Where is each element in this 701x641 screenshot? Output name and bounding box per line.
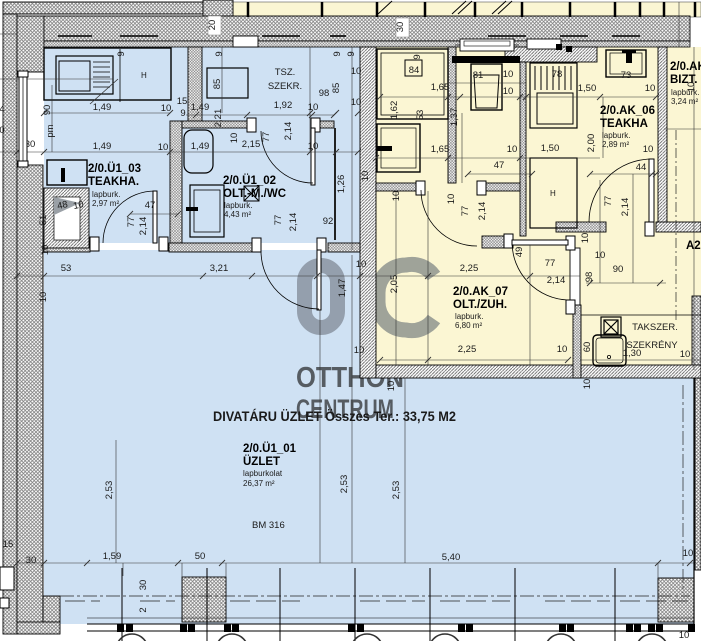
svg-text:81: 81 [473, 70, 484, 81]
svg-text:2/0.AK_0: 2/0.AK_0 [670, 61, 701, 73]
svg-text:2,14: 2,14 [477, 202, 488, 221]
svg-text:2,05: 2,05 [389, 275, 400, 294]
svg-text:20: 20 [207, 20, 218, 31]
svg-text:77: 77 [273, 215, 284, 226]
svg-text:2/0.AK_06: 2/0.AK_06 [600, 105, 655, 117]
svg-text:2,14: 2,14 [288, 213, 299, 232]
svg-text:10: 10 [351, 66, 362, 77]
svg-text:2,25: 2,25 [458, 344, 477, 355]
svg-text:10: 10 [308, 102, 319, 113]
svg-text:30: 30 [138, 580, 149, 591]
svg-text:9: 9 [116, 51, 127, 56]
svg-text:10: 10 [38, 292, 49, 303]
svg-text:5,40: 5,40 [442, 552, 461, 563]
svg-text:1,92: 1,92 [274, 100, 293, 111]
svg-text:2,00: 2,00 [586, 134, 597, 153]
svg-text:51: 51 [38, 215, 49, 226]
svg-text:10: 10 [507, 144, 518, 155]
svg-text:10: 10 [158, 142, 169, 153]
svg-text:77: 77 [603, 196, 614, 207]
svg-text:1,47: 1,47 [337, 279, 348, 298]
svg-text:77: 77 [545, 258, 556, 269]
svg-text:2,53: 2,53 [104, 481, 115, 500]
svg-text:10: 10 [680, 349, 691, 360]
svg-text:2,14: 2,14 [620, 198, 631, 217]
svg-text:78: 78 [552, 69, 563, 80]
svg-text:2,21: 2,21 [213, 109, 224, 128]
svg-text:10: 10 [391, 191, 402, 202]
svg-text:84: 84 [409, 65, 420, 76]
svg-text:2,53: 2,53 [391, 481, 402, 500]
svg-text:2,25: 2,25 [460, 263, 479, 274]
svg-text:77: 77 [126, 217, 137, 228]
svg-text:BM 316: BM 316 [252, 520, 285, 531]
svg-text:10: 10 [679, 630, 690, 641]
svg-text:pm: pm [45, 124, 56, 137]
svg-text:10: 10 [580, 233, 591, 244]
svg-text:73: 73 [621, 70, 632, 81]
svg-text:1,26: 1,26 [336, 175, 347, 194]
svg-text:6,80 m²: 6,80 m² [455, 321, 482, 330]
svg-text:OLT./ZUH.: OLT./ZUH. [453, 299, 507, 311]
svg-text:2/0.AK_07: 2/0.AK_07 [453, 286, 508, 298]
svg-text:15: 15 [177, 96, 188, 107]
svg-text:98: 98 [584, 272, 595, 283]
svg-text:47: 47 [494, 160, 505, 171]
svg-text:10: 10 [643, 144, 654, 155]
svg-text:60: 60 [582, 342, 593, 353]
svg-text:2,14: 2,14 [283, 122, 294, 141]
svg-text:DIVATÁRU ÜZLET Összes Ter.: 33: DIVATÁRU ÜZLET Összes Ter.: 33,75 M2 [213, 409, 456, 424]
svg-text:90: 90 [42, 105, 53, 116]
svg-text:10: 10 [308, 141, 319, 152]
svg-text:53: 53 [61, 263, 72, 274]
svg-text:9: 9 [180, 108, 185, 119]
svg-text:2,14: 2,14 [138, 217, 149, 236]
svg-text:47: 47 [145, 200, 156, 211]
svg-text:2,14: 2,14 [547, 275, 566, 286]
svg-text:1,62: 1,62 [389, 101, 400, 120]
svg-text:0: 0 [0, 125, 5, 136]
svg-text:1,59: 1,59 [103, 551, 122, 562]
svg-text:85: 85 [331, 83, 342, 94]
svg-text:10: 10 [40, 245, 51, 256]
svg-text:1,50: 1,50 [541, 143, 560, 154]
svg-text:lapburk.: lapburk. [455, 312, 483, 321]
svg-text:10: 10 [503, 69, 514, 80]
svg-text:10: 10 [683, 548, 694, 559]
svg-text:A2E: A2E [686, 240, 701, 252]
svg-text:26,37 m²: 26,37 m² [243, 479, 275, 488]
svg-text:1,49: 1,49 [93, 102, 112, 113]
svg-text:50: 50 [195, 551, 206, 562]
svg-text:9: 9 [346, 51, 357, 56]
svg-text:4: 4 [0, 104, 5, 115]
svg-text:10: 10 [557, 344, 568, 355]
svg-text:10: 10 [161, 103, 172, 114]
svg-text:10: 10 [72, 199, 85, 212]
svg-text:92: 92 [323, 216, 334, 227]
svg-text:3,21: 3,21 [210, 263, 229, 274]
svg-text:15: 15 [3, 539, 14, 550]
svg-text:98: 98 [319, 88, 330, 99]
svg-text:1,49: 1,49 [191, 141, 210, 152]
svg-text:90: 90 [613, 264, 624, 275]
svg-text:77: 77 [261, 132, 272, 143]
svg-text:3,24 m²: 3,24 m² [671, 97, 698, 106]
svg-text:85: 85 [212, 79, 223, 90]
svg-text:2/0.Ü1_01: 2/0.Ü1_01 [243, 442, 297, 455]
svg-text:44: 44 [636, 162, 647, 173]
svg-text:H: H [141, 71, 147, 80]
svg-text:10: 10 [354, 345, 365, 356]
svg-text:10: 10 [356, 259, 367, 270]
svg-text:10: 10 [229, 133, 240, 144]
svg-text:30: 30 [26, 555, 37, 566]
svg-text:48: 48 [56, 199, 69, 212]
svg-text:10: 10 [386, 381, 397, 392]
svg-text:lapburk.: lapburk. [92, 190, 120, 199]
svg-text:1,50: 1,50 [578, 83, 597, 94]
svg-text:1,37: 1,37 [449, 108, 460, 127]
svg-text:10: 10 [351, 97, 362, 108]
svg-text:4,43 m²: 4,43 m² [224, 210, 251, 219]
svg-text:2,53: 2,53 [339, 475, 350, 494]
svg-text:ÜZLET: ÜZLET [243, 455, 280, 468]
svg-text:2/0.Ü1_03: 2/0.Ü1_03 [88, 162, 141, 175]
svg-text:9: 9 [332, 51, 343, 56]
svg-text:9: 9 [214, 51, 225, 56]
svg-text:53: 53 [415, 110, 426, 121]
svg-text:10: 10 [595, 250, 606, 261]
svg-text:10: 10 [686, 82, 697, 93]
svg-text:lapburk.: lapburk. [602, 131, 630, 140]
svg-text:1,49: 1,49 [191, 102, 210, 113]
svg-text:10: 10 [360, 171, 371, 182]
svg-text:1,30: 1,30 [623, 348, 642, 359]
svg-text:1,65: 1,65 [431, 144, 450, 155]
svg-text:10: 10 [582, 379, 593, 390]
svg-text:H: H [550, 189, 556, 198]
svg-text:10: 10 [503, 86, 514, 97]
svg-text:49: 49 [514, 247, 525, 258]
svg-text:2,97 m²: 2,97 m² [92, 199, 119, 208]
svg-text:1,49: 1,49 [93, 141, 112, 152]
svg-text:TEAKHA: TEAKHA [600, 118, 648, 130]
svg-text:10: 10 [446, 194, 457, 205]
svg-text:OLT.-M./WC: OLT.-M./WC [223, 188, 286, 200]
svg-text:2: 2 [138, 607, 149, 612]
svg-text:SZEKR.: SZEKR. [268, 81, 302, 92]
svg-text:2/0.Ü1_02: 2/0.Ü1_02 [223, 174, 276, 187]
svg-text:10: 10 [645, 83, 656, 94]
svg-text:lapburkolat: lapburkolat [243, 469, 283, 478]
svg-text:TEAKHA.: TEAKHA. [88, 176, 139, 188]
svg-text:2,15: 2,15 [242, 139, 261, 150]
svg-text:2,89 m²: 2,89 m² [602, 140, 629, 149]
svg-text:9: 9 [412, 54, 423, 59]
svg-text:TAKSZER.: TAKSZER. [632, 322, 678, 333]
svg-text:30: 30 [395, 22, 406, 33]
svg-text:lapburk.: lapburk. [224, 201, 252, 210]
svg-text:77: 77 [460, 206, 471, 217]
svg-text:TSZ.: TSZ. [275, 67, 296, 78]
svg-text:1,65: 1,65 [431, 82, 450, 93]
